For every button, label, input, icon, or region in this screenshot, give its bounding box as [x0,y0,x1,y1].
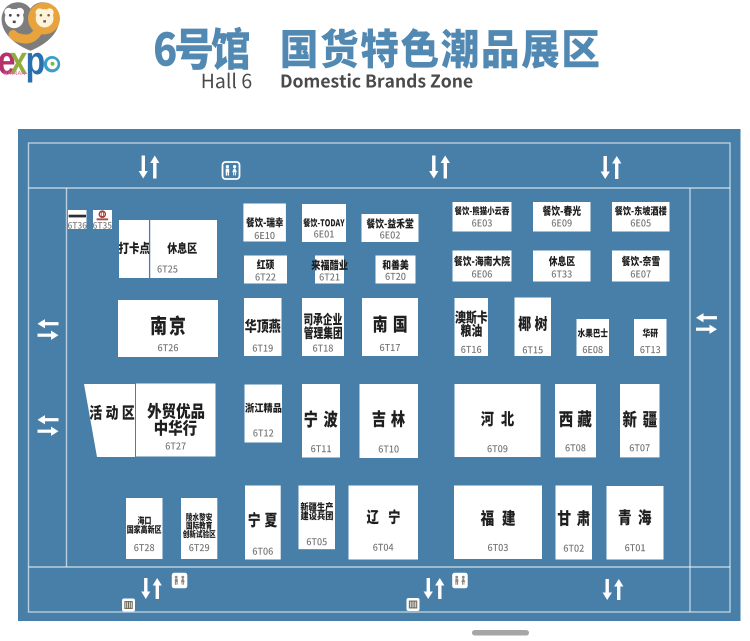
svg-text:p: p [26,38,46,83]
svg-text:HAINAN: HAINAN [4,71,26,77]
